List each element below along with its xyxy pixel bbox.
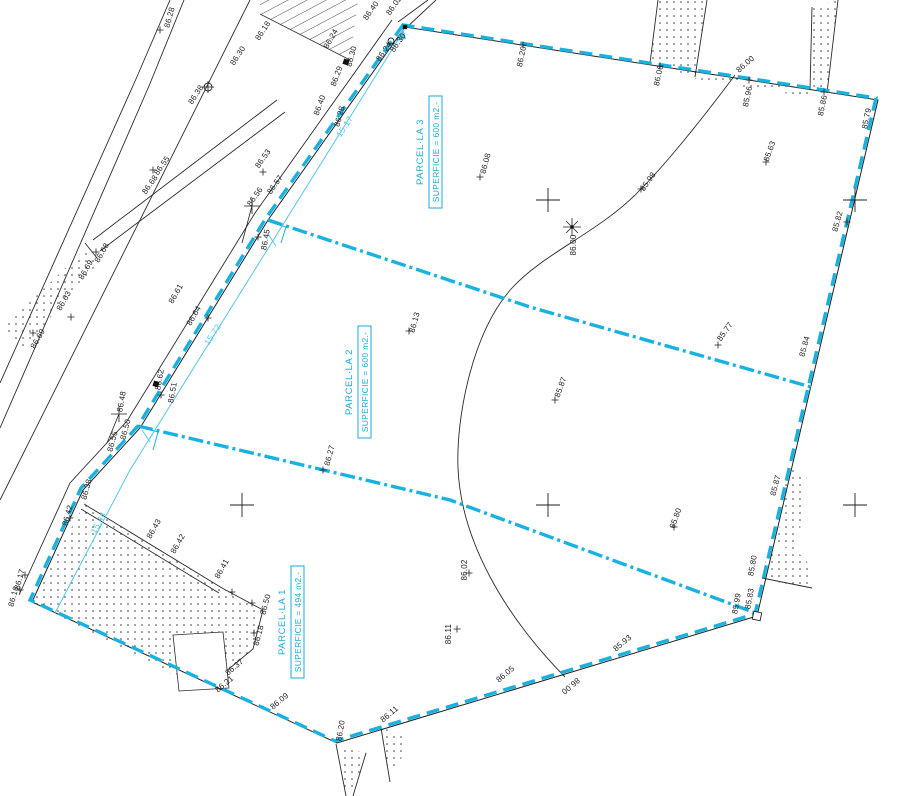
elevation-label: 86.42 [169,532,187,555]
elevation-label: 86.42 [61,504,75,527]
survey-tick [454,626,461,633]
parcel-name: PARCEL·LA 3 [415,119,426,185]
contour-line [458,75,735,677]
elevation-label: 86.11 [444,623,453,644]
benchmark-circle-icon [202,81,214,93]
elevation-label: 85.82 [831,210,845,233]
parcel-name: PARCEL·LA 1 [277,589,288,655]
elevation-label: 86.38 [80,478,94,501]
parcel-dividers [138,220,811,612]
grid-cross [536,493,560,517]
elevation-label: 86.53 [253,147,273,170]
elevation-label: 86.20 [515,45,528,68]
elevation-label: 86.05 [494,664,516,685]
elevation-label: 85.87 [553,375,569,398]
elevation-label: 86.16 [7,585,21,608]
elevation-label: 86.29 [329,64,345,87]
elevation-label: 86.48 [115,390,128,413]
divider-parcel-2-1 [138,426,753,612]
elevation-label: 85.63 [762,139,778,162]
elevation-label: 86.09 [268,691,290,712]
elevation-label: 85.80 [746,554,759,577]
elevation-label: 86.50 [259,593,273,616]
elevation-label: 85.87 [769,474,783,497]
parcel-name: PARCEL·LA 2 [344,349,355,415]
elevation-label: 86.56 [245,185,265,208]
elevation-label: 86.08 [479,152,493,175]
elevation-label: 85.98 [638,170,658,193]
corner-marker [403,25,407,29]
stipple-areas [4,0,838,792]
grid-cross [536,188,560,212]
elevation-label: 86.02 [460,559,469,580]
grid-cross [843,493,867,517]
elevation-label: 86.27 [323,444,337,467]
elevation-label: 85.96 [741,85,754,108]
elevation-label: 86.00 [559,676,581,697]
elevation-label: 86.18 [253,19,272,42]
superficie-label: SUPERFICIE = 600 m2.- [360,332,370,433]
elevation-label: 86.41 [213,557,231,580]
grid-cross [230,493,254,517]
corner-marker [752,611,761,620]
elevation-label: 85.86 [816,94,829,117]
elevation-label: 86.06 [652,64,665,87]
parcel-labels: PARCEL·LA 3SUPERFICIE = 600 m2.-PARCEL·L… [277,96,442,678]
elevation-label: 86.20 [334,719,347,742]
elevation-label: 86.30 [228,44,247,67]
elevation-label: 86.40 [361,0,381,22]
elevation-label: 86.57 [265,173,285,196]
parcel-label: PARCEL·LA 1SUPERFICIE = 494 m2.- [277,566,304,678]
elevation-label: 86.13 [408,311,422,334]
elevation-label: 86.51 [166,381,179,404]
site-plan-svg: 86.2886.1886.3086.3886.2486.3086.2986.40… [0,0,897,796]
elevation-label: 86.50 [119,418,133,441]
dimension-label: 15.72 [202,322,223,347]
parcel-label: PARCEL·LA 2SUPERFICIE = 600 m2.- [344,326,371,438]
superficie-label: SUPERFICIE = 494 m2.- [293,572,303,673]
elevation-label: 86.00 [569,234,578,255]
elevation-label: 86.68 [140,173,160,196]
elevation-label: 86.68 [93,241,111,264]
elevation-label: 85.99 [730,592,743,615]
elevation-label: 85.84 [798,335,812,358]
elevation-label: 86.61 [167,282,185,305]
elevation-label: 85.80 [668,506,684,529]
elevation-label: 86.43 [145,517,163,540]
survey-tick [715,342,722,349]
elevation-label: 86.55 [152,154,172,177]
site-plan-canvas: 86.2886.1886.3086.3886.2486.3086.2986.40… [0,0,897,796]
elevation-label: 85.83 [743,587,756,610]
elevation-label: 86.40 [312,93,328,116]
elevation-label: 86.02 [384,0,404,17]
elevation-label: 85.93 [611,633,633,654]
elevation-label: 86.00 [735,54,757,75]
survey-tick [477,174,484,181]
elevation-label: 86.62 [153,368,166,391]
survey-tick [157,27,164,34]
station-star-icon [570,225,574,229]
survey-tick [68,314,75,321]
elevation-label: 85.77 [715,320,735,343]
elevation-label: 86.28 [163,6,177,29]
grid-cross [843,188,867,212]
hatch-area [260,0,358,60]
superficie-label: SUPERFICIE = 600 m2.- [431,102,441,203]
parcel-label: PARCEL·LA 3SUPERFICIE = 600 m2.- [415,96,442,208]
survey-tick [844,219,851,226]
